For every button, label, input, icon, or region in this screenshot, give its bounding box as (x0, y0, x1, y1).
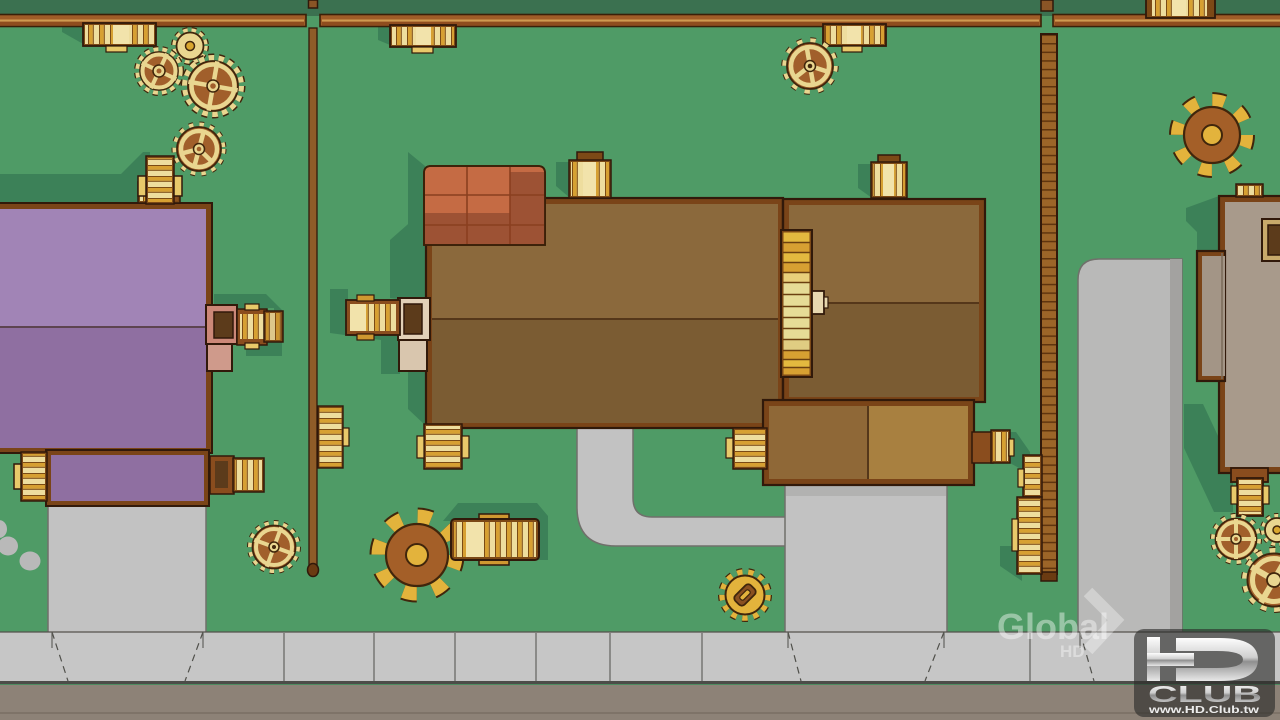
svg-text:www.HD.Club.tw: www.HD.Club.tw (1148, 705, 1260, 716)
svg-text:HD: HD (1060, 642, 1085, 661)
svg-text:CLUB: CLUB (1148, 681, 1262, 707)
